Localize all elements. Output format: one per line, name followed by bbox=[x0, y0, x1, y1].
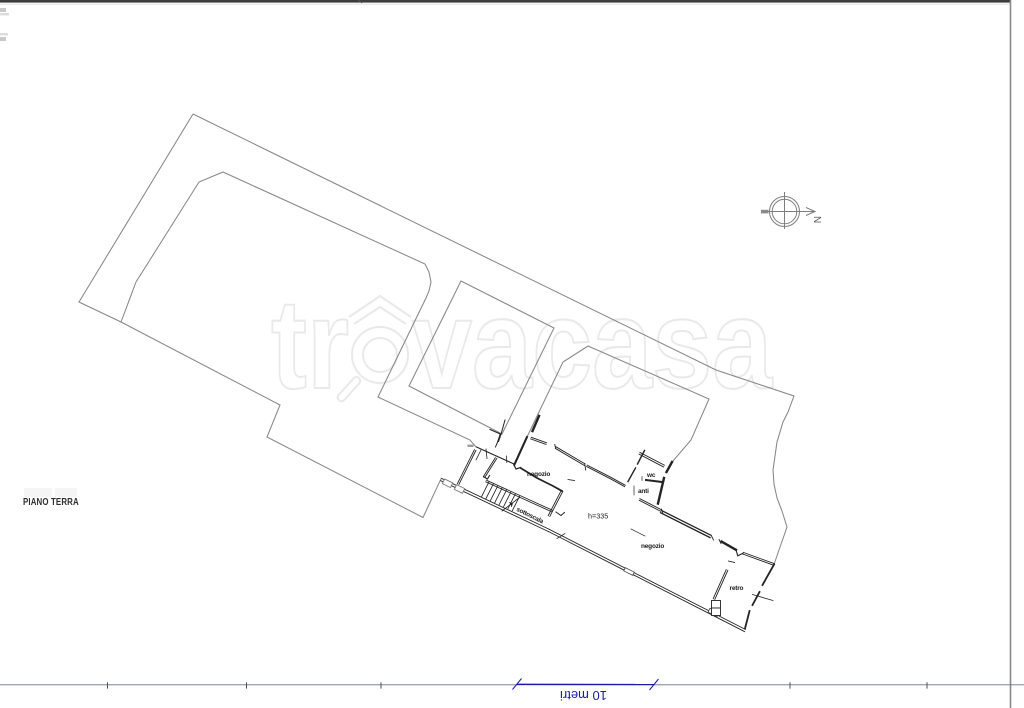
svg-text:vacasa: vacasa bbox=[412, 273, 774, 415]
svg-text:retro: retro bbox=[730, 585, 744, 592]
svg-text:negozio: negozio bbox=[527, 471, 550, 478]
svg-text:N: N bbox=[811, 216, 822, 223]
svg-text:anti: anti bbox=[638, 488, 649, 495]
svg-text:tr: tr bbox=[271, 273, 349, 415]
svg-text:PIANO TERRA: PIANO TERRA bbox=[23, 496, 79, 507]
svg-text:negozio: negozio bbox=[641, 543, 664, 550]
svg-text:h=335: h=335 bbox=[588, 512, 608, 521]
svg-text:wc: wc bbox=[646, 472, 656, 479]
svg-text:10 metri: 10 metri bbox=[560, 688, 607, 703]
